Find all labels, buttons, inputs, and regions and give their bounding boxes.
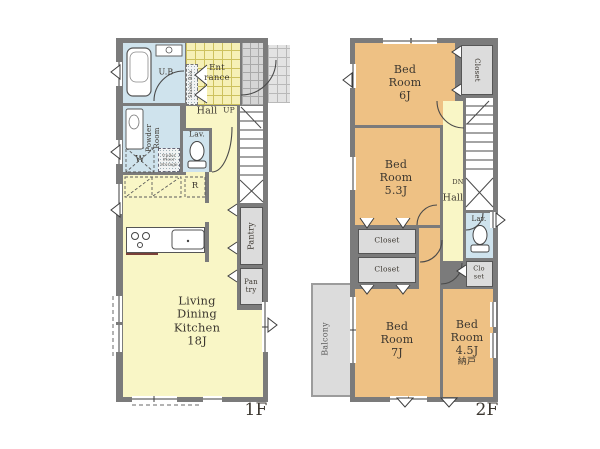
floorplan-canvas: U.B Ent rance Shoes Box Powder Room Lav.… [0, 0, 600, 449]
label-unit-bath: U.B [158, 67, 173, 76]
label-pantry-large: Pantry [246, 222, 255, 250]
floorplan-linework [0, 0, 600, 449]
label-closet-mid-upper: Closet [374, 237, 399, 246]
label-hall-2f: Hall [443, 192, 464, 203]
label-closet-2f-top: Closet [473, 58, 481, 82]
kitchen-counter [126, 227, 205, 253]
label-refrigerator: R [192, 182, 199, 192]
label-bedroom-7j: Bed Room 7J [381, 321, 414, 359]
label-bedroom-45j: Bed Room 4.5J [451, 319, 484, 357]
label-hall-1f: Hall [197, 105, 218, 116]
label-floor1: 1F [244, 401, 267, 421]
label-lav-1f: Lav. [189, 131, 205, 140]
entrance-porch [242, 43, 263, 105]
counter-end-panel [205, 222, 209, 262]
label-underfloor-storage: Under Floor Storage [160, 153, 177, 166]
label-dn: DN [452, 179, 463, 187]
room-ldk-upper [123, 175, 237, 397]
label-ldk: Living Dining Kitchen 18J [174, 294, 220, 347]
label-floor2: 2F [475, 401, 498, 421]
label-bedroom-45j-storage: 納戸 [458, 357, 476, 367]
stairs-1f [240, 106, 263, 203]
label-up: UP [223, 107, 235, 116]
room-ldk-lower-right [237, 310, 263, 397]
label-closet-side: Clo set [473, 265, 485, 280]
label-balcony: Balcony [320, 322, 329, 356]
label-closet-mid-lower: Closet [374, 266, 399, 275]
entrance-porch-outside [268, 45, 290, 103]
label-bedroom-6j: Bed Room 6J [389, 64, 422, 102]
label-lav-2f: Lav. [472, 215, 487, 223]
room-unit-bath [123, 43, 185, 103]
label-washer: W [135, 155, 144, 165]
label-pantry-small: Pan try [244, 278, 258, 294]
label-entrance: Ent rance [204, 64, 229, 84]
label-powder-room: Powder Room [145, 124, 161, 152]
stairs-2f [466, 98, 493, 210]
label-shoes-box: Shoes Box [189, 70, 195, 98]
bedroom7-vestibule [419, 228, 440, 289]
kitchen-wall-stub [205, 172, 209, 203]
label-bedroom-53j: Bed Room 5.3J [380, 159, 413, 197]
